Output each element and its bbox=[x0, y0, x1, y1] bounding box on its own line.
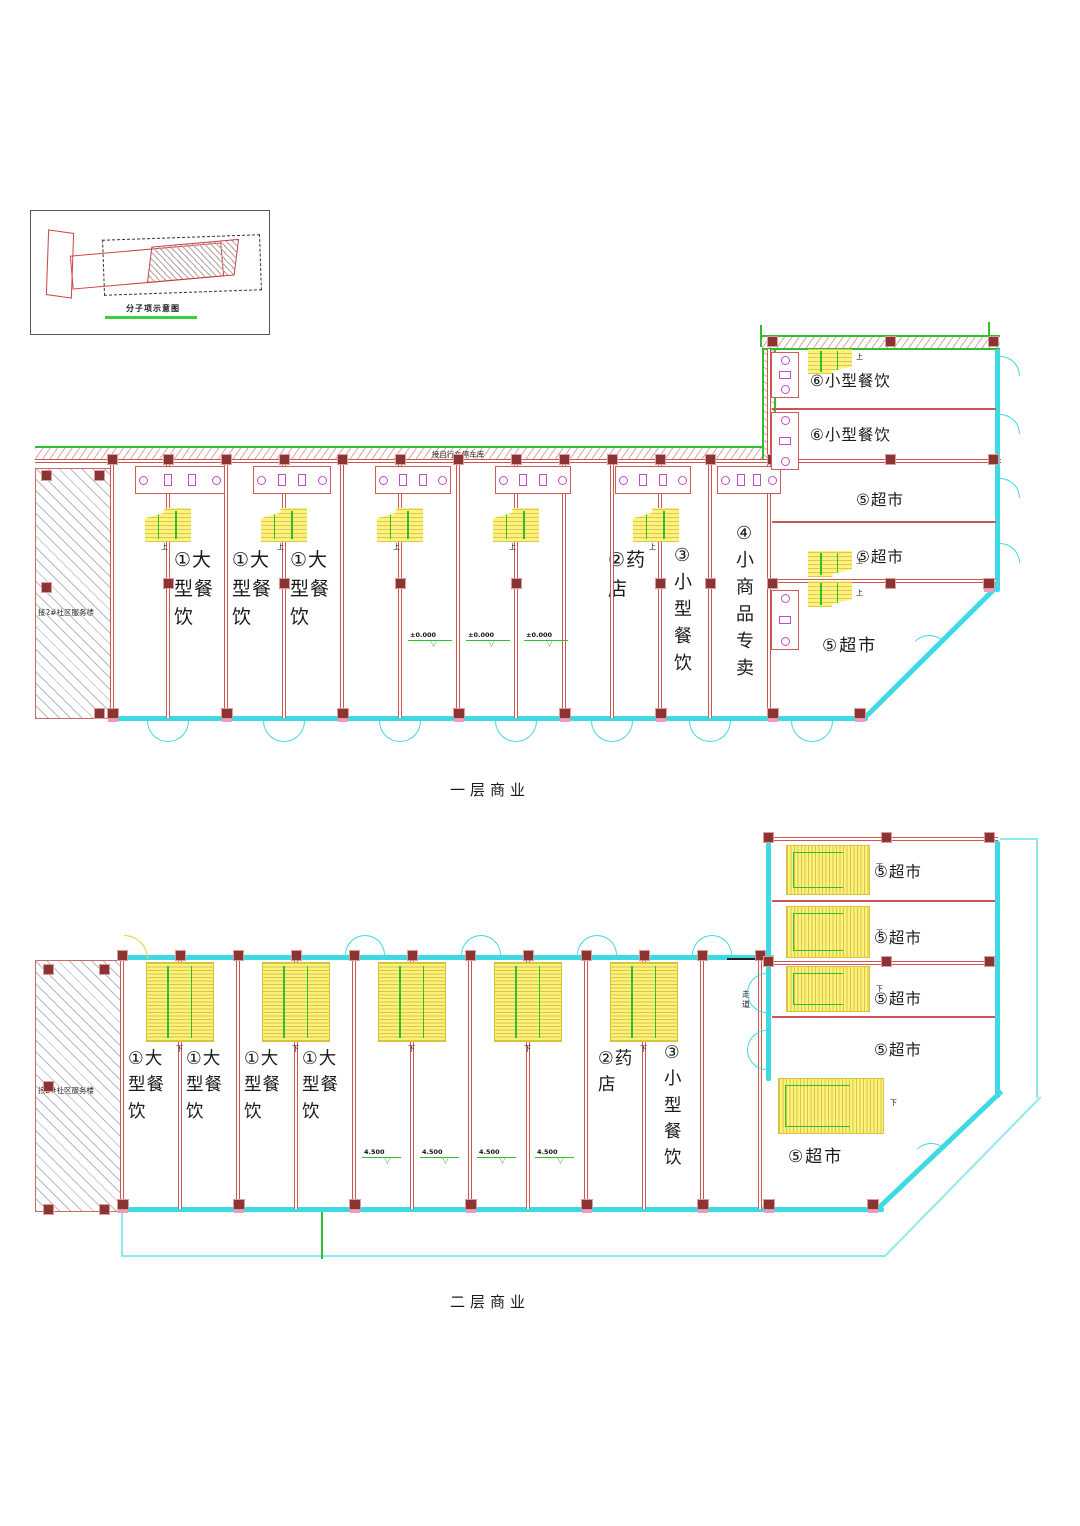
washroom-fixtures bbox=[495, 466, 571, 494]
room-label-f1-dining-2: ①大型餐饮 bbox=[232, 546, 280, 632]
elevation-triangle-icon: ▽ bbox=[488, 641, 514, 647]
wall bbox=[584, 958, 588, 1209]
column bbox=[396, 579, 405, 588]
toilet-fixture-icon bbox=[539, 474, 547, 486]
stair-direction-mark: 上 bbox=[856, 558, 863, 565]
column bbox=[582, 1200, 592, 1209]
column bbox=[42, 471, 51, 480]
stair-icon bbox=[261, 508, 307, 542]
door-arc-icon bbox=[692, 935, 712, 955]
door-arc-icon bbox=[461, 935, 481, 955]
column bbox=[706, 579, 715, 588]
column bbox=[42, 583, 51, 592]
column bbox=[100, 1205, 109, 1214]
elevation-marker: ±0.000▽ bbox=[524, 622, 572, 638]
column bbox=[560, 709, 570, 718]
toilet-fixture-icon bbox=[768, 476, 777, 485]
toilet-fixture-icon bbox=[139, 476, 148, 485]
wall bbox=[562, 463, 566, 718]
toilet-fixture-icon bbox=[379, 476, 388, 485]
elevation-triangle-icon: ▽ bbox=[499, 1158, 525, 1164]
stair-icon bbox=[377, 508, 423, 542]
column bbox=[764, 1200, 774, 1209]
door-arc-icon bbox=[516, 721, 537, 742]
wall bbox=[700, 958, 704, 1209]
door-arc-icon bbox=[747, 993, 767, 1013]
column bbox=[768, 337, 777, 346]
column bbox=[350, 1200, 360, 1209]
stair-direction-mark: 上 bbox=[649, 544, 656, 551]
washroom-fixtures bbox=[615, 466, 691, 494]
stair-direction-mark: 上 bbox=[277, 544, 284, 551]
wall bbox=[514, 463, 518, 718]
stair-direction-mark: 下 bbox=[640, 1046, 647, 1053]
column bbox=[100, 965, 109, 974]
stair-shaft-icon bbox=[378, 962, 446, 1042]
column bbox=[656, 709, 666, 718]
column bbox=[764, 833, 773, 842]
room-label-f1-wing-2: ⑥小型餐饮 bbox=[810, 423, 891, 445]
door-arc-icon bbox=[263, 721, 284, 742]
washroom-fixtures bbox=[375, 466, 451, 494]
room-label-f1-pharmacy: ②药店 bbox=[608, 546, 652, 603]
column bbox=[989, 455, 998, 464]
stair-direction-mark: 下 bbox=[176, 1046, 183, 1053]
column bbox=[44, 1082, 53, 1091]
floor1-title: 一层商业 bbox=[450, 779, 530, 800]
marker-tick bbox=[321, 1212, 323, 1259]
door-arc-icon bbox=[915, 627, 943, 655]
column bbox=[44, 1205, 53, 1214]
wall bbox=[120, 958, 124, 1209]
door-arc-icon bbox=[791, 721, 812, 742]
toilet-fixture-icon bbox=[519, 474, 527, 486]
stair-direction-mark: 上 bbox=[509, 544, 516, 551]
washroom-fixtures bbox=[135, 466, 225, 494]
washroom-fixtures bbox=[717, 466, 781, 494]
toilet-fixture-icon bbox=[779, 616, 791, 624]
column bbox=[396, 455, 405, 464]
wall bbox=[224, 463, 228, 718]
column bbox=[95, 471, 104, 480]
toilet-fixture-icon bbox=[781, 416, 790, 425]
stair-direction-mark: 下 bbox=[876, 930, 883, 937]
door-arc-icon bbox=[612, 721, 633, 742]
room-label-f1-commodity: ④小商品专卖 bbox=[736, 520, 758, 682]
column bbox=[855, 709, 865, 718]
column bbox=[234, 1200, 244, 1209]
column bbox=[768, 709, 778, 718]
column bbox=[560, 455, 569, 464]
stair-shaft-icon bbox=[786, 906, 870, 958]
stair-shaft-icon bbox=[786, 966, 870, 1012]
elevation-triangle-icon: ▽ bbox=[384, 1158, 410, 1164]
column bbox=[985, 957, 994, 966]
toilet-fixture-icon bbox=[781, 356, 790, 365]
column bbox=[886, 455, 895, 464]
toilet-fixture-icon bbox=[257, 476, 266, 485]
room-label-f1-wing-3: ⑤超市 bbox=[856, 488, 904, 510]
wall bbox=[110, 463, 114, 718]
door-arc-icon bbox=[481, 935, 501, 955]
column bbox=[886, 579, 895, 588]
elevation-marker: 4.500▽ bbox=[535, 1139, 583, 1155]
ramp-hatch-band bbox=[762, 335, 1000, 350]
elevation-marker: 4.500▽ bbox=[477, 1139, 525, 1155]
elevation-triangle-icon: ▽ bbox=[546, 641, 572, 647]
column bbox=[44, 965, 53, 974]
stair-direction-mark: 下 bbox=[890, 1100, 897, 1107]
column bbox=[524, 951, 533, 960]
stair-direction-mark: 上 bbox=[161, 544, 168, 551]
toilet-fixture-icon bbox=[659, 474, 667, 486]
column bbox=[222, 455, 231, 464]
washroom-fixtures bbox=[771, 352, 799, 398]
wall bbox=[772, 408, 996, 410]
door-arc-icon bbox=[284, 721, 305, 742]
wall bbox=[772, 900, 998, 902]
key-plan-underline bbox=[105, 316, 197, 319]
stair-shaft-icon bbox=[146, 962, 214, 1042]
column bbox=[768, 579, 777, 588]
column bbox=[118, 1200, 128, 1209]
door-arc-icon bbox=[1000, 356, 1020, 376]
toilet-fixture-icon bbox=[499, 476, 508, 485]
elevation-value: 4.500 bbox=[535, 1149, 574, 1158]
wall bbox=[340, 463, 344, 718]
room-label-f1-dining-3: ①大型餐饮 bbox=[290, 546, 338, 632]
toilet-fixture-icon bbox=[318, 476, 327, 485]
elevation-marker: ±0.000▽ bbox=[466, 622, 514, 638]
door-arc-icon bbox=[365, 935, 385, 955]
elevation-marker: 4.500▽ bbox=[420, 1139, 468, 1155]
wall bbox=[166, 463, 170, 718]
door-arc-icon bbox=[379, 721, 400, 742]
stair-direction-mark: 下 bbox=[408, 1046, 415, 1053]
column bbox=[698, 1200, 708, 1209]
toilet-fixture-icon bbox=[278, 474, 286, 486]
toilet-fixture-icon bbox=[753, 474, 761, 486]
column bbox=[608, 455, 617, 464]
door-arc-icon bbox=[597, 935, 617, 955]
door-arc-icon bbox=[345, 935, 365, 955]
column bbox=[656, 455, 665, 464]
column bbox=[280, 579, 289, 588]
column bbox=[466, 1200, 476, 1209]
column bbox=[292, 951, 301, 960]
door-arc-icon bbox=[1000, 478, 1020, 498]
stair-direction-mark: 上 bbox=[856, 354, 863, 361]
toilet-fixture-icon bbox=[781, 594, 790, 603]
column bbox=[222, 709, 232, 718]
door-arc-icon bbox=[400, 721, 421, 742]
canopy-line bbox=[1000, 838, 1037, 840]
room-label-f2-dining-1: ①大型餐饮 bbox=[128, 1046, 174, 1125]
column bbox=[338, 709, 348, 718]
door-arc-icon bbox=[747, 1050, 767, 1070]
column bbox=[512, 579, 521, 588]
toilet-fixture-icon bbox=[558, 476, 567, 485]
door-arc-icon bbox=[917, 1135, 945, 1163]
toilet-fixture-icon bbox=[419, 474, 427, 486]
stair-direction-mark: 下 bbox=[524, 1046, 531, 1053]
room-label-f2-pharmacy: ②药店 bbox=[598, 1046, 640, 1099]
door-arc-icon bbox=[124, 935, 148, 959]
washroom-fixtures bbox=[253, 466, 331, 494]
door-arc-icon bbox=[747, 1030, 767, 1050]
column bbox=[164, 579, 173, 588]
wall bbox=[456, 463, 460, 718]
stair-shaft-icon bbox=[610, 962, 678, 1042]
toilet-fixture-icon bbox=[212, 476, 221, 485]
canopy-line bbox=[1036, 838, 1038, 1098]
wall bbox=[398, 463, 402, 718]
door-arc-icon bbox=[1000, 414, 1020, 434]
column bbox=[454, 709, 464, 718]
toilet-fixture-icon bbox=[721, 476, 730, 485]
door-arc-icon bbox=[591, 721, 612, 742]
door-arc-icon bbox=[495, 721, 516, 742]
canopy-line bbox=[121, 1255, 885, 1257]
column bbox=[985, 833, 994, 842]
elevation-triangle-icon: ▽ bbox=[430, 641, 456, 647]
stair-icon bbox=[808, 551, 852, 577]
wall bbox=[610, 463, 614, 718]
toilet-fixture-icon bbox=[779, 437, 791, 445]
toilet-fixture-icon bbox=[781, 637, 790, 646]
stair-direction-mark: 下 bbox=[876, 864, 883, 871]
door-arc-icon bbox=[147, 721, 168, 742]
annex-hatch-block bbox=[35, 468, 112, 719]
stair-shaft-icon bbox=[494, 962, 562, 1042]
wall bbox=[772, 579, 996, 583]
toilet-fixture-icon bbox=[399, 474, 407, 486]
door-arc-icon bbox=[712, 935, 732, 955]
room-label-f1-wing-5: ⑤超市 bbox=[822, 631, 877, 656]
elevation-triangle-icon: ▽ bbox=[557, 1158, 583, 1164]
washroom-fixtures bbox=[771, 590, 799, 650]
column bbox=[882, 833, 891, 842]
storefront-wall bbox=[122, 955, 774, 960]
column bbox=[164, 455, 173, 464]
stair-direction-mark: 下 bbox=[876, 986, 883, 993]
room-label-f1-small-dining: ③小型餐饮 bbox=[674, 542, 696, 677]
stair-shaft-icon bbox=[786, 845, 870, 895]
door-arc-icon bbox=[168, 721, 189, 742]
column bbox=[108, 709, 118, 718]
stair-icon bbox=[808, 581, 852, 607]
column bbox=[234, 951, 243, 960]
marker-tick bbox=[760, 325, 762, 347]
stair-icon bbox=[145, 508, 191, 542]
column bbox=[454, 455, 463, 464]
column bbox=[882, 957, 891, 966]
column bbox=[656, 579, 665, 588]
room-label-f1-wing-4: ⑤超市 bbox=[856, 545, 904, 567]
column bbox=[408, 951, 417, 960]
column bbox=[95, 709, 104, 718]
room-label-f2-dining-4: ①大型餐饮 bbox=[302, 1046, 348, 1125]
elevation-marker: ±0.000▽ bbox=[408, 622, 456, 638]
wall bbox=[767, 349, 771, 718]
toilet-fixture-icon bbox=[639, 474, 647, 486]
toilet-fixture-icon bbox=[781, 385, 790, 394]
storefront-wall bbox=[995, 841, 1000, 1098]
door-arc-icon bbox=[577, 935, 597, 955]
column bbox=[989, 337, 998, 346]
washroom-fixtures bbox=[771, 412, 799, 470]
elevation-marker: 4.500▽ bbox=[362, 1139, 410, 1155]
toilet-fixture-icon bbox=[779, 371, 791, 379]
wall bbox=[352, 958, 356, 1209]
room-label-f2-dining-3: ①大型餐饮 bbox=[244, 1046, 290, 1125]
toilet-fixture-icon bbox=[781, 457, 790, 466]
elevation-value: 4.500 bbox=[477, 1149, 516, 1158]
toilet-fixture-icon bbox=[619, 476, 628, 485]
column bbox=[706, 455, 715, 464]
canopy-line bbox=[121, 1212, 123, 1256]
column bbox=[280, 455, 289, 464]
toilet-fixture-icon bbox=[298, 474, 306, 486]
elevation-value: 4.500 bbox=[420, 1149, 459, 1158]
stair-icon bbox=[633, 508, 679, 542]
column bbox=[338, 455, 347, 464]
toilet-fixture-icon bbox=[737, 474, 745, 486]
door-arc-icon bbox=[747, 973, 767, 993]
room-label-f2-small-dining: ③小型餐饮 bbox=[664, 1040, 685, 1171]
stair-direction-mark: 下 bbox=[292, 1046, 299, 1053]
column bbox=[640, 951, 649, 960]
door-arc-icon bbox=[1000, 543, 1020, 563]
room-label-f2-wing-5: ⑤超市 bbox=[788, 1142, 843, 1167]
wall bbox=[708, 463, 712, 718]
door-arc-icon bbox=[710, 721, 731, 742]
toilet-fixture-icon bbox=[164, 474, 172, 486]
toilet-fixture-icon bbox=[438, 476, 447, 485]
wall bbox=[772, 1016, 998, 1018]
stair-shaft-icon bbox=[778, 1078, 884, 1134]
key-plan-inset: 分子项示意图 bbox=[30, 210, 270, 335]
wall bbox=[282, 463, 286, 718]
column bbox=[108, 455, 117, 464]
floor-plan-sheet: 分子项示意图 接自行车停车库 接2#社区服务楼 ①大型餐饮 ①大型餐饮 ①大型餐… bbox=[0, 0, 1080, 1526]
column bbox=[868, 1200, 878, 1209]
elevation-triangle-icon: ▽ bbox=[442, 1158, 468, 1164]
wall bbox=[468, 958, 472, 1209]
column bbox=[886, 337, 895, 346]
key-plan-caption: 分子项示意图 bbox=[103, 303, 203, 314]
room-label-f1-dining-1: ①大型餐饮 bbox=[174, 546, 222, 632]
column bbox=[984, 579, 994, 588]
room-label-f2-wing-4: ⑤超市 bbox=[874, 1038, 922, 1060]
wall bbox=[772, 521, 996, 523]
column bbox=[176, 951, 185, 960]
stair-icon bbox=[493, 508, 539, 542]
toilet-fixture-icon bbox=[678, 476, 687, 485]
door-arc-icon bbox=[689, 721, 710, 742]
stair-shaft-icon bbox=[262, 962, 330, 1042]
floor2-title: 二层商业 bbox=[450, 1291, 530, 1312]
toilet-fixture-icon bbox=[188, 474, 196, 486]
wall bbox=[658, 463, 662, 718]
stair-direction-mark: 上 bbox=[393, 544, 400, 551]
wall bbox=[236, 958, 240, 1209]
room-label-f2-dining-2: ①大型餐饮 bbox=[186, 1046, 232, 1125]
stair-direction-mark: 上 bbox=[856, 590, 863, 597]
column bbox=[512, 455, 521, 464]
column bbox=[764, 957, 773, 966]
door-arc-icon bbox=[812, 721, 833, 742]
elevation-value: 4.500 bbox=[362, 1149, 401, 1158]
